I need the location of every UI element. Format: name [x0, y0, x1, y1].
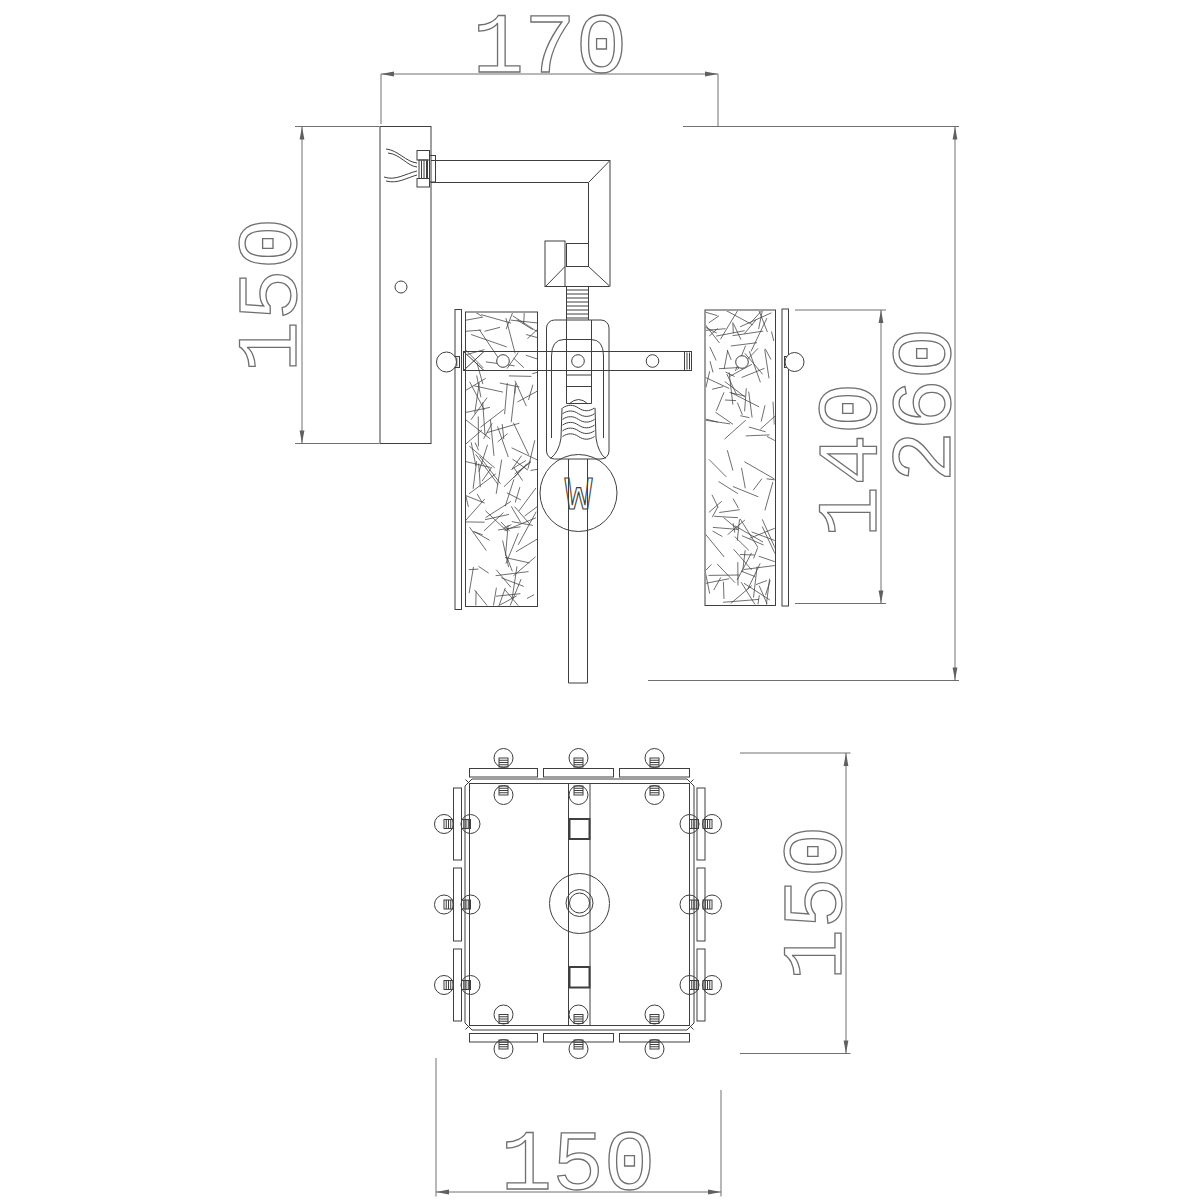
socket-housing — [547, 320, 610, 459]
bar-hole — [497, 355, 510, 368]
bolt — [703, 895, 722, 914]
mounting-bolts — [435, 749, 722, 1059]
bolt — [435, 976, 454, 995]
bolt — [461, 815, 480, 834]
glass-pane-right — [705, 310, 776, 606]
bolt — [645, 1040, 664, 1059]
glass-strip-top — [470, 769, 538, 778]
bolt — [645, 1005, 664, 1024]
dimension-backplate-height: 150 — [224, 127, 379, 444]
bolt — [435, 815, 454, 834]
dimension-label-260: 260 — [878, 328, 976, 483]
base-frame — [465, 779, 694, 1030]
glass-strip-top — [544, 769, 614, 778]
glass-strip-bottom — [620, 1034, 690, 1043]
bar-hole — [646, 355, 659, 368]
center-bracket — [550, 784, 610, 1026]
plate-hole — [395, 281, 407, 293]
screw-head — [437, 352, 457, 372]
bolt — [569, 1040, 588, 1059]
bar-hole — [572, 355, 585, 368]
arm-miter — [589, 161, 611, 183]
power-wires — [384, 149, 417, 182]
bolt — [494, 1040, 513, 1059]
glass-strip-bottom — [544, 1034, 614, 1043]
glass-strip-bottom — [470, 1034, 538, 1043]
glass-panel-left — [447, 305, 547, 618]
panel-holder-strip-left — [455, 310, 462, 610]
bolt — [461, 976, 480, 995]
glass-strip-left — [454, 949, 462, 1021]
stem-boss — [550, 874, 610, 934]
glass-texture-left — [447, 305, 547, 618]
bolt — [569, 1005, 588, 1024]
bracket-square-bottom — [570, 967, 590, 988]
mounting-bar — [464, 352, 692, 371]
glass-strip-top — [620, 769, 690, 778]
bolt — [703, 976, 722, 995]
bolt — [645, 786, 664, 805]
dimension-label-170: 170 — [473, 0, 628, 98]
dimension-label-150-right: 150 — [769, 826, 867, 981]
side-screw-right — [785, 353, 805, 372]
bolt — [461, 895, 480, 914]
bolt — [435, 895, 454, 914]
threaded-nipple — [567, 287, 589, 321]
bolt — [569, 749, 588, 768]
bulb-screw-base — [551, 400, 606, 459]
dimension-bracket-depth: 170 — [381, 0, 718, 126]
bolt — [494, 786, 513, 805]
panel-holder-strip-right — [782, 309, 789, 606]
screw-head — [785, 353, 804, 372]
wall-lamp-technical-drawing: W 170 150 — [0, 0, 1200, 1200]
bolt — [494, 1005, 513, 1024]
bolt — [569, 786, 588, 805]
cable-gland — [417, 151, 436, 188]
bar-end-brace — [464, 352, 485, 371]
side-view: W 170 150 — [224, 0, 976, 683]
mounting-arm — [431, 161, 610, 287]
bolt — [645, 749, 664, 768]
bulb: W — [540, 455, 617, 532]
side-screw-left — [437, 352, 460, 372]
glass-strip-left — [454, 788, 462, 860]
glass-texture-right — [697, 293, 784, 612]
socket-cover — [545, 241, 610, 287]
bolt — [494, 749, 513, 768]
wall-plate — [380, 127, 431, 444]
dimension-base-width: 150 — [436, 1058, 721, 1200]
bolt — [703, 815, 722, 834]
glass-panel-right — [697, 293, 788, 612]
technical-drawing-page: W 170 150 — [0, 0, 1200, 1200]
dimension-base-depth: 150 — [740, 753, 867, 1054]
bracket-square-top — [570, 819, 590, 839]
dimension-label-150-bottom: 150 — [501, 1117, 656, 1200]
bottom-view: 150 150 — [435, 749, 868, 1200]
dimension-label-150-left: 150 — [224, 218, 322, 373]
base-glass-strips — [454, 769, 706, 1043]
glass-strip-left — [454, 868, 462, 941]
panel-hole-right — [736, 356, 749, 369]
